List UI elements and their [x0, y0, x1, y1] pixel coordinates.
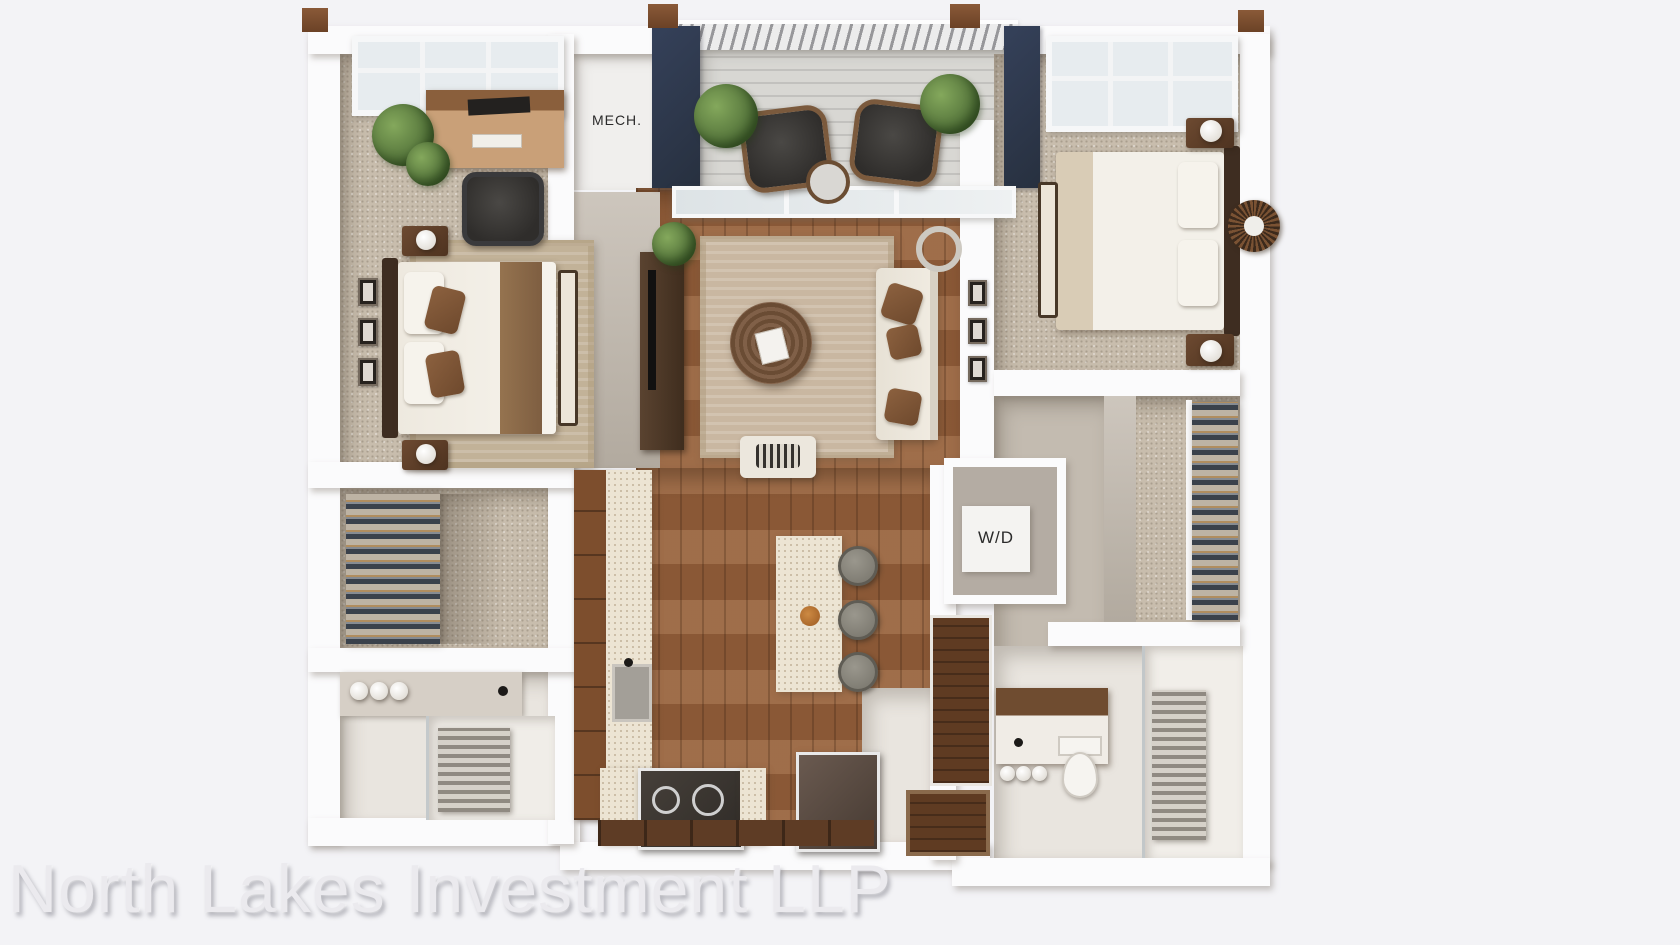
rolled-towel	[1000, 766, 1015, 781]
wall-art-frame	[358, 318, 378, 346]
roof-post-left	[302, 8, 328, 32]
wall-bottom-right	[952, 858, 1270, 886]
wall-closet1-bathroom1	[308, 648, 574, 672]
bed1-foot-bench	[558, 270, 578, 426]
table-lamp	[1200, 340, 1222, 362]
roof-post-balcony-right	[950, 4, 980, 28]
bar-stool	[838, 600, 878, 640]
floor-plan-render: { "artwork": { "type": "3D apartment flo…	[0, 0, 1680, 945]
office-chair	[462, 172, 544, 246]
bed2-foot-bench	[1038, 182, 1058, 318]
burner-icon	[652, 786, 680, 814]
table-lamp	[1200, 120, 1222, 142]
rolled-towel	[1032, 766, 1047, 781]
patio-side-table	[806, 160, 850, 204]
kitchen-cabinets-bottom	[598, 820, 874, 846]
roof-post-right	[1238, 10, 1264, 32]
fruit-bowl	[800, 606, 820, 626]
table-lamp	[416, 230, 436, 250]
rolled-towel	[350, 682, 368, 700]
balcony-wall-right-navy	[1004, 26, 1040, 188]
shower-bench-slats	[438, 728, 510, 812]
pantry-cabinet	[930, 615, 992, 786]
tv-console	[640, 252, 684, 450]
mech-room-label: MECH.	[574, 112, 660, 128]
rolled-towel	[1016, 766, 1031, 781]
washer-dryer-label: W/D	[962, 528, 1030, 548]
faucet-icon	[1014, 738, 1023, 747]
entry-door	[906, 790, 990, 856]
wall-left-exterior	[308, 34, 340, 842]
toilet	[1062, 752, 1098, 798]
desk-keyboard	[472, 134, 522, 148]
burner-icon	[692, 784, 724, 816]
balcony-wall-left-navy	[652, 26, 700, 188]
bed2-pillow	[1178, 162, 1218, 228]
roof-post-balcony-left	[648, 4, 678, 28]
wall-art-frame	[968, 280, 987, 306]
closet2-wall-face	[1104, 396, 1136, 622]
sofa-pillow	[883, 387, 922, 426]
bed1-throw-blanket	[500, 262, 542, 434]
sofa-backrest	[930, 268, 938, 440]
rolled-towel	[370, 682, 388, 700]
kitchen-sink	[612, 664, 652, 722]
bar-stool	[838, 652, 878, 692]
wall-closet2-bathroom2	[1048, 622, 1240, 646]
wall-art-frame	[968, 318, 987, 344]
wall-bedroom2-closet2	[994, 370, 1240, 396]
sofa-pillow	[885, 323, 923, 361]
closet1-hanging-clothes	[346, 494, 440, 644]
bed2-pillow	[1178, 240, 1218, 306]
rolled-towel	[390, 682, 408, 700]
bed1-accent-pillow	[424, 349, 465, 398]
bar-stool	[838, 546, 878, 586]
potted-plant-icon	[406, 142, 450, 186]
desk-monitor	[468, 96, 531, 115]
faucet-icon	[498, 686, 508, 696]
faucet-icon	[624, 658, 633, 667]
closet2-hanging-clothes	[1192, 402, 1238, 620]
wall-bottom-left	[308, 818, 580, 846]
wall-art-frame	[358, 278, 378, 306]
closet1-shadow	[440, 494, 504, 644]
balcony-plant-icon	[694, 84, 758, 148]
living-plant-icon	[652, 222, 696, 266]
wall-art-frame	[968, 356, 987, 382]
table-lamp	[416, 444, 436, 464]
striped-pillow	[756, 444, 800, 468]
balcony-plant-icon	[920, 74, 980, 134]
tv-screen	[648, 270, 656, 390]
wall-art-frame	[358, 358, 378, 386]
bed1-headboard	[382, 258, 398, 438]
shower-bench-slats	[1152, 690, 1206, 840]
sunburst-mirror-glass	[1244, 216, 1264, 236]
wall-right-exterior	[1240, 34, 1270, 866]
watermark-text: North Lakes Investment LLP	[8, 850, 892, 928]
floor-lamp-icon	[916, 226, 962, 272]
